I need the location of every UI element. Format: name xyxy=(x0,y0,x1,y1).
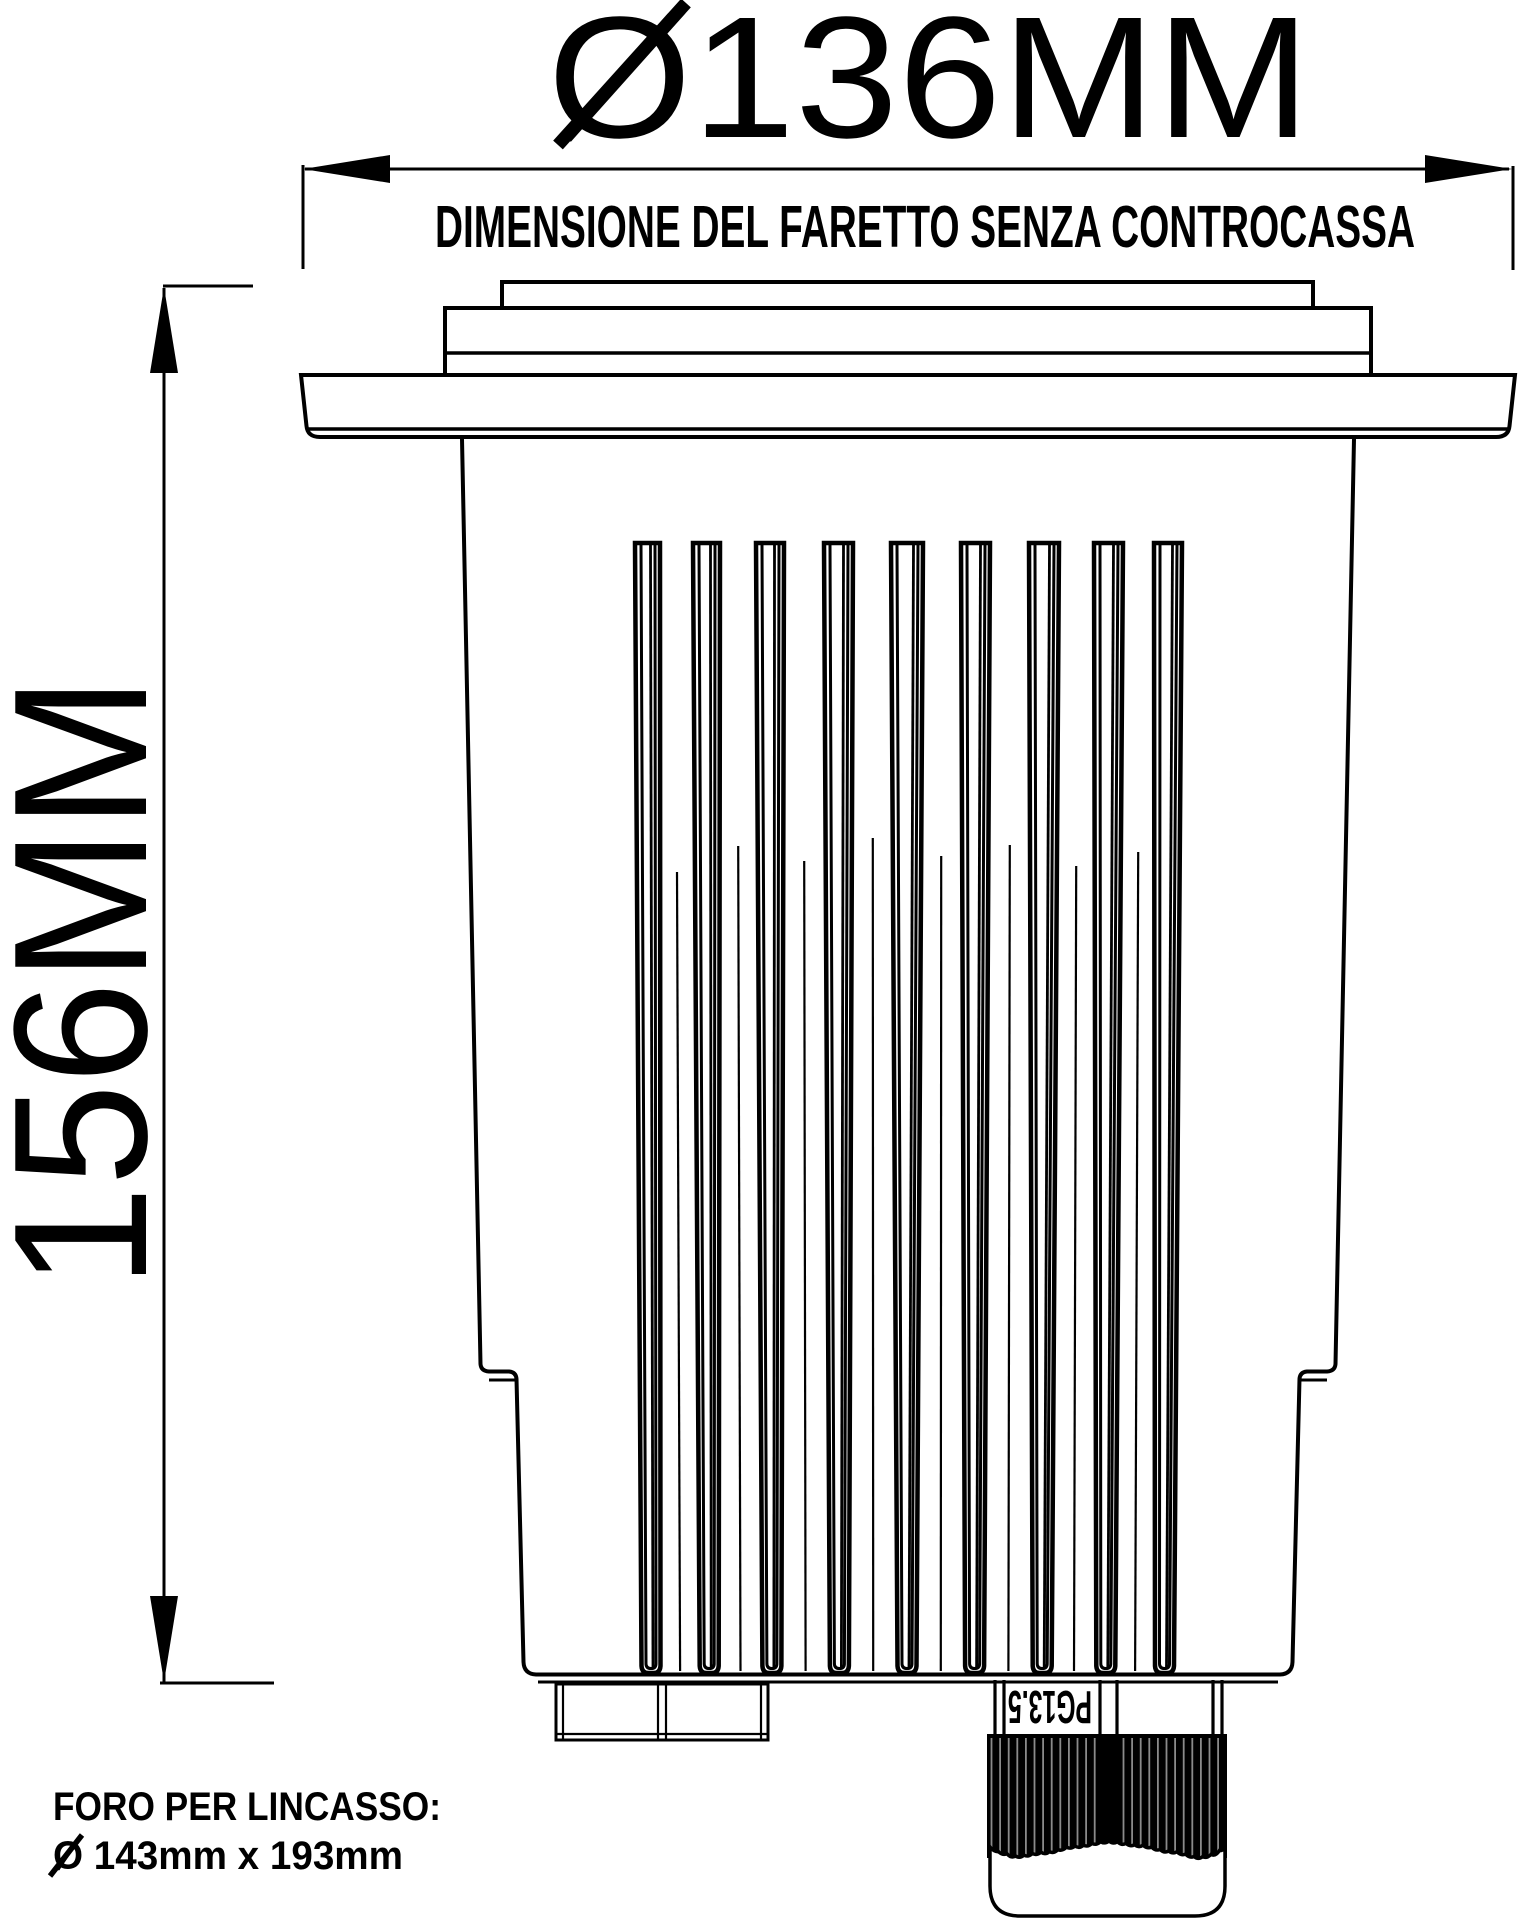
svg-text:DIMENSIONE DEL FARETTO SENZA C: DIMENSIONE DEL FARETTO SENZA CONTROCASSA xyxy=(435,194,1415,260)
svg-text:PG13.5: PG13.5 xyxy=(1008,1681,1092,1733)
svg-text:Ø 143mm x 193mm: Ø 143mm x 193mm xyxy=(53,1834,403,1878)
svg-text:156MM: 156MM xyxy=(0,676,187,1288)
svg-text:FORO PER LINCASSO:: FORO PER LINCASSO: xyxy=(53,1785,441,1829)
